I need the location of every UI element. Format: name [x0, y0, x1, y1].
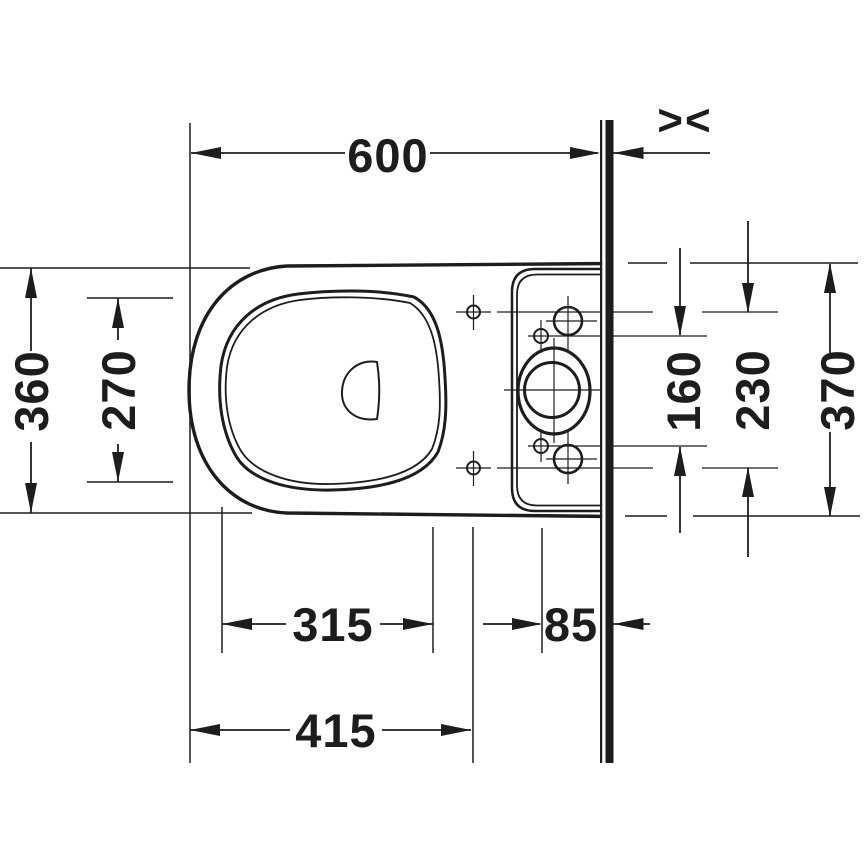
- dim-315-label: 315: [292, 598, 373, 651]
- dim-front-to-wall-600: 600: [191, 129, 710, 182]
- extension-lines: [0, 123, 860, 763]
- wall-hatch-bar: [606, 120, 614, 763]
- drawing-page: 600 360 270 160 230 370: [0, 0, 868, 868]
- wall-break-symbol: ><: [657, 96, 712, 145]
- dim-85-label: 85: [544, 598, 598, 651]
- technical-drawing-canvas: 600 360 270 160 230 370: [0, 0, 868, 868]
- dim-hinge-holes-230: 230: [726, 221, 779, 557]
- dim-600-label: 600: [347, 129, 428, 182]
- drain-outlet: [342, 362, 379, 420]
- dim-415-label: 415: [295, 704, 376, 757]
- wall-finish-line: [600, 120, 602, 763]
- dim-360-label: 360: [5, 350, 58, 431]
- dim-tank-width-370: 370: [811, 263, 864, 517]
- dim-370-label: 370: [811, 349, 864, 430]
- seat-rim-outer: [220, 291, 446, 490]
- dim-230-label: 230: [726, 349, 779, 430]
- dim-body-width-360: 360: [5, 268, 58, 513]
- dim-bowl-inner-length-315: 315: [222, 598, 433, 651]
- dim-fixing-holes-160: 160: [657, 248, 710, 533]
- dim-front-to-hinge-415: 415: [190, 704, 471, 757]
- seat-rim-inner: [226, 297, 440, 484]
- wall-gap: [602, 120, 605, 763]
- dim-holes-to-wall-85: 85: [483, 598, 650, 651]
- dim-bowl-inner-width-270: 270: [92, 298, 145, 482]
- dim-270-label: 270: [92, 349, 145, 430]
- dim-160-label: 160: [657, 350, 710, 431]
